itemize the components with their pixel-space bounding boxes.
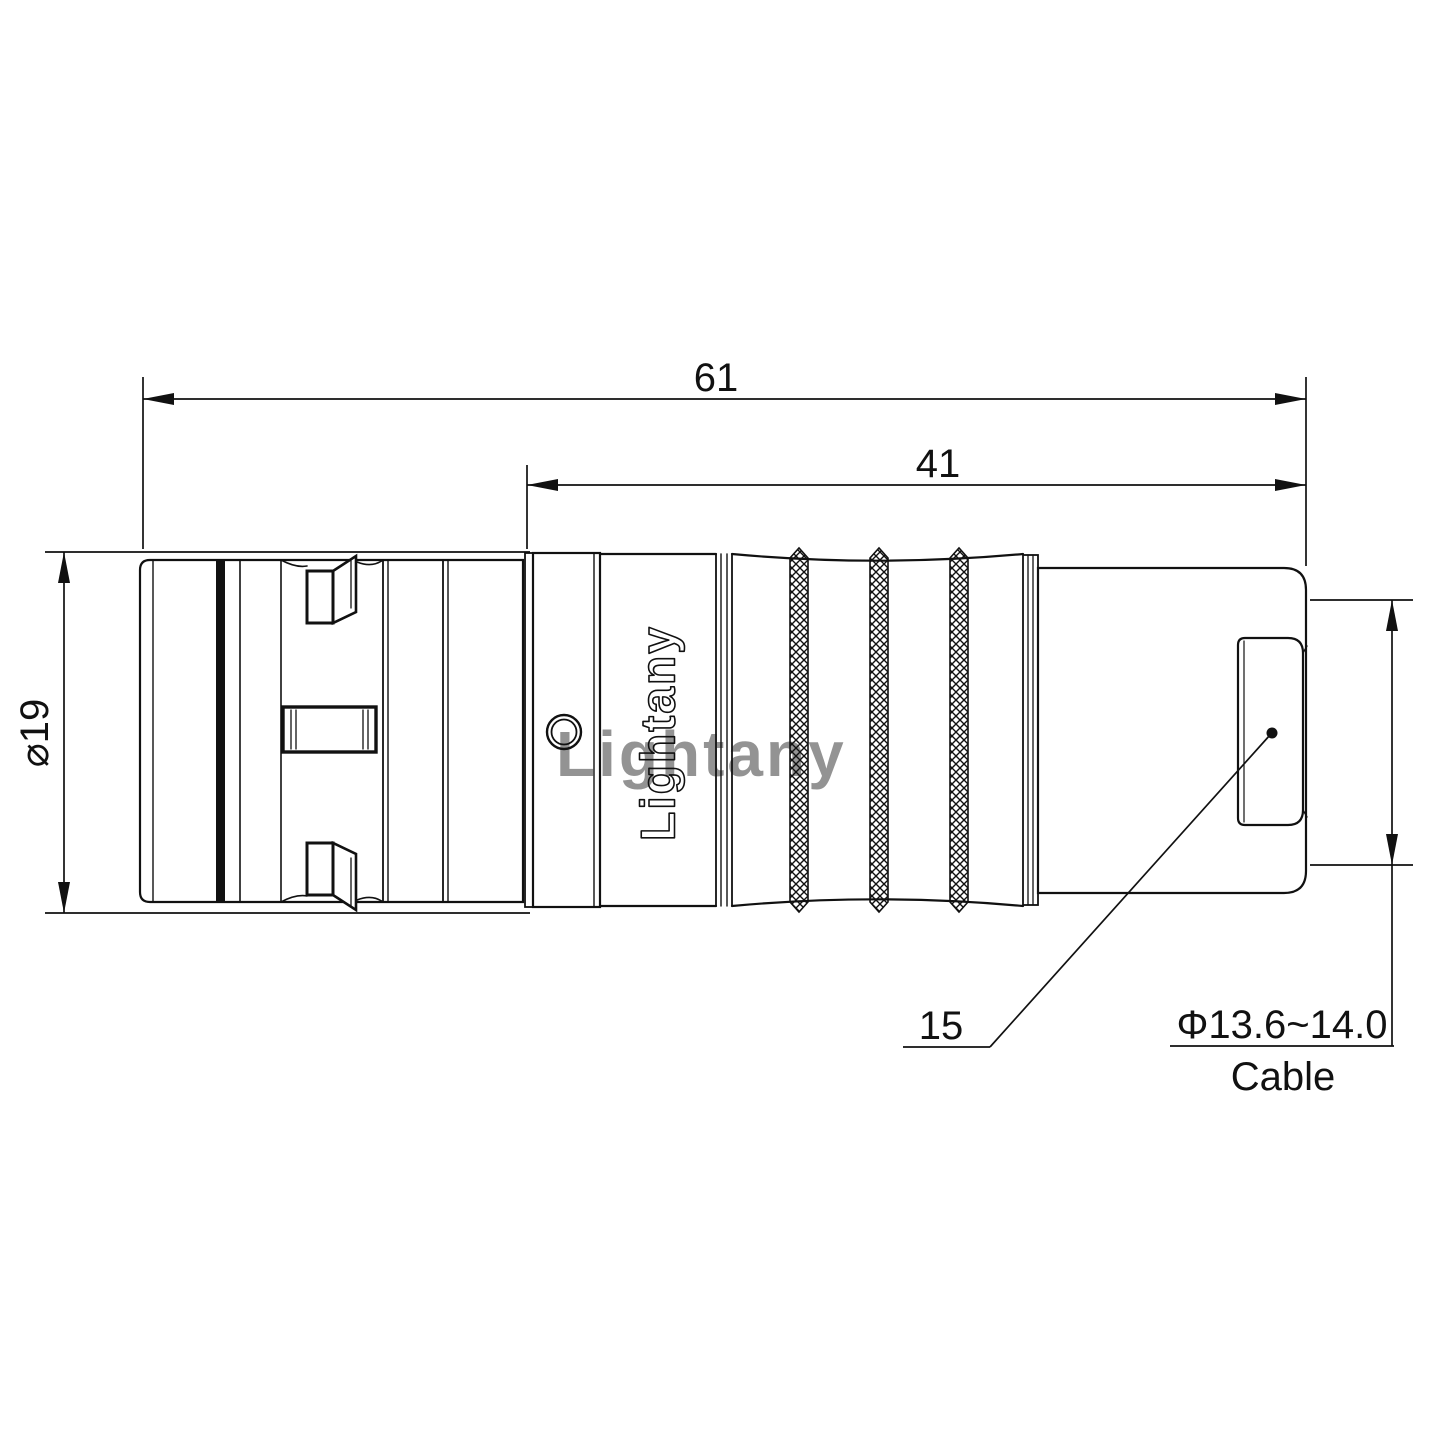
arrowhead-left xyxy=(527,479,558,491)
connector-technical-drawing: Lightany xyxy=(0,0,1440,1440)
arrowhead-down xyxy=(58,882,70,913)
front-shell-section xyxy=(140,556,523,910)
arrowhead-right xyxy=(1275,393,1306,405)
key-slot xyxy=(283,707,376,752)
dim-overall-length: 61 xyxy=(143,356,1306,566)
drawing-canvas: Lightany xyxy=(0,0,1440,1440)
shell-groove-band xyxy=(216,561,225,901)
dim-rear-length: 41 xyxy=(527,442,1306,549)
dim-body-diameter-label: ⌀19 xyxy=(13,699,57,768)
dim-boot-length-label: 15 xyxy=(919,1004,964,1048)
arrowhead-right xyxy=(1275,479,1306,491)
arrowhead-down xyxy=(1386,834,1398,865)
knurl-band-3 xyxy=(950,548,968,912)
dim-overall-length-label: 61 xyxy=(694,356,739,400)
knurl-band-2 xyxy=(870,548,888,912)
arrowhead-left xyxy=(143,393,174,405)
watermark-text: Lightany xyxy=(556,718,847,790)
arrowhead-up xyxy=(58,552,70,583)
cable-word-label: Cable xyxy=(1231,1055,1336,1099)
dim-cable-diameter-label: Φ13.6~14.0 xyxy=(1177,1003,1388,1047)
dim-rear-length-label: 41 xyxy=(916,442,961,486)
arrowhead-up xyxy=(1386,600,1398,631)
